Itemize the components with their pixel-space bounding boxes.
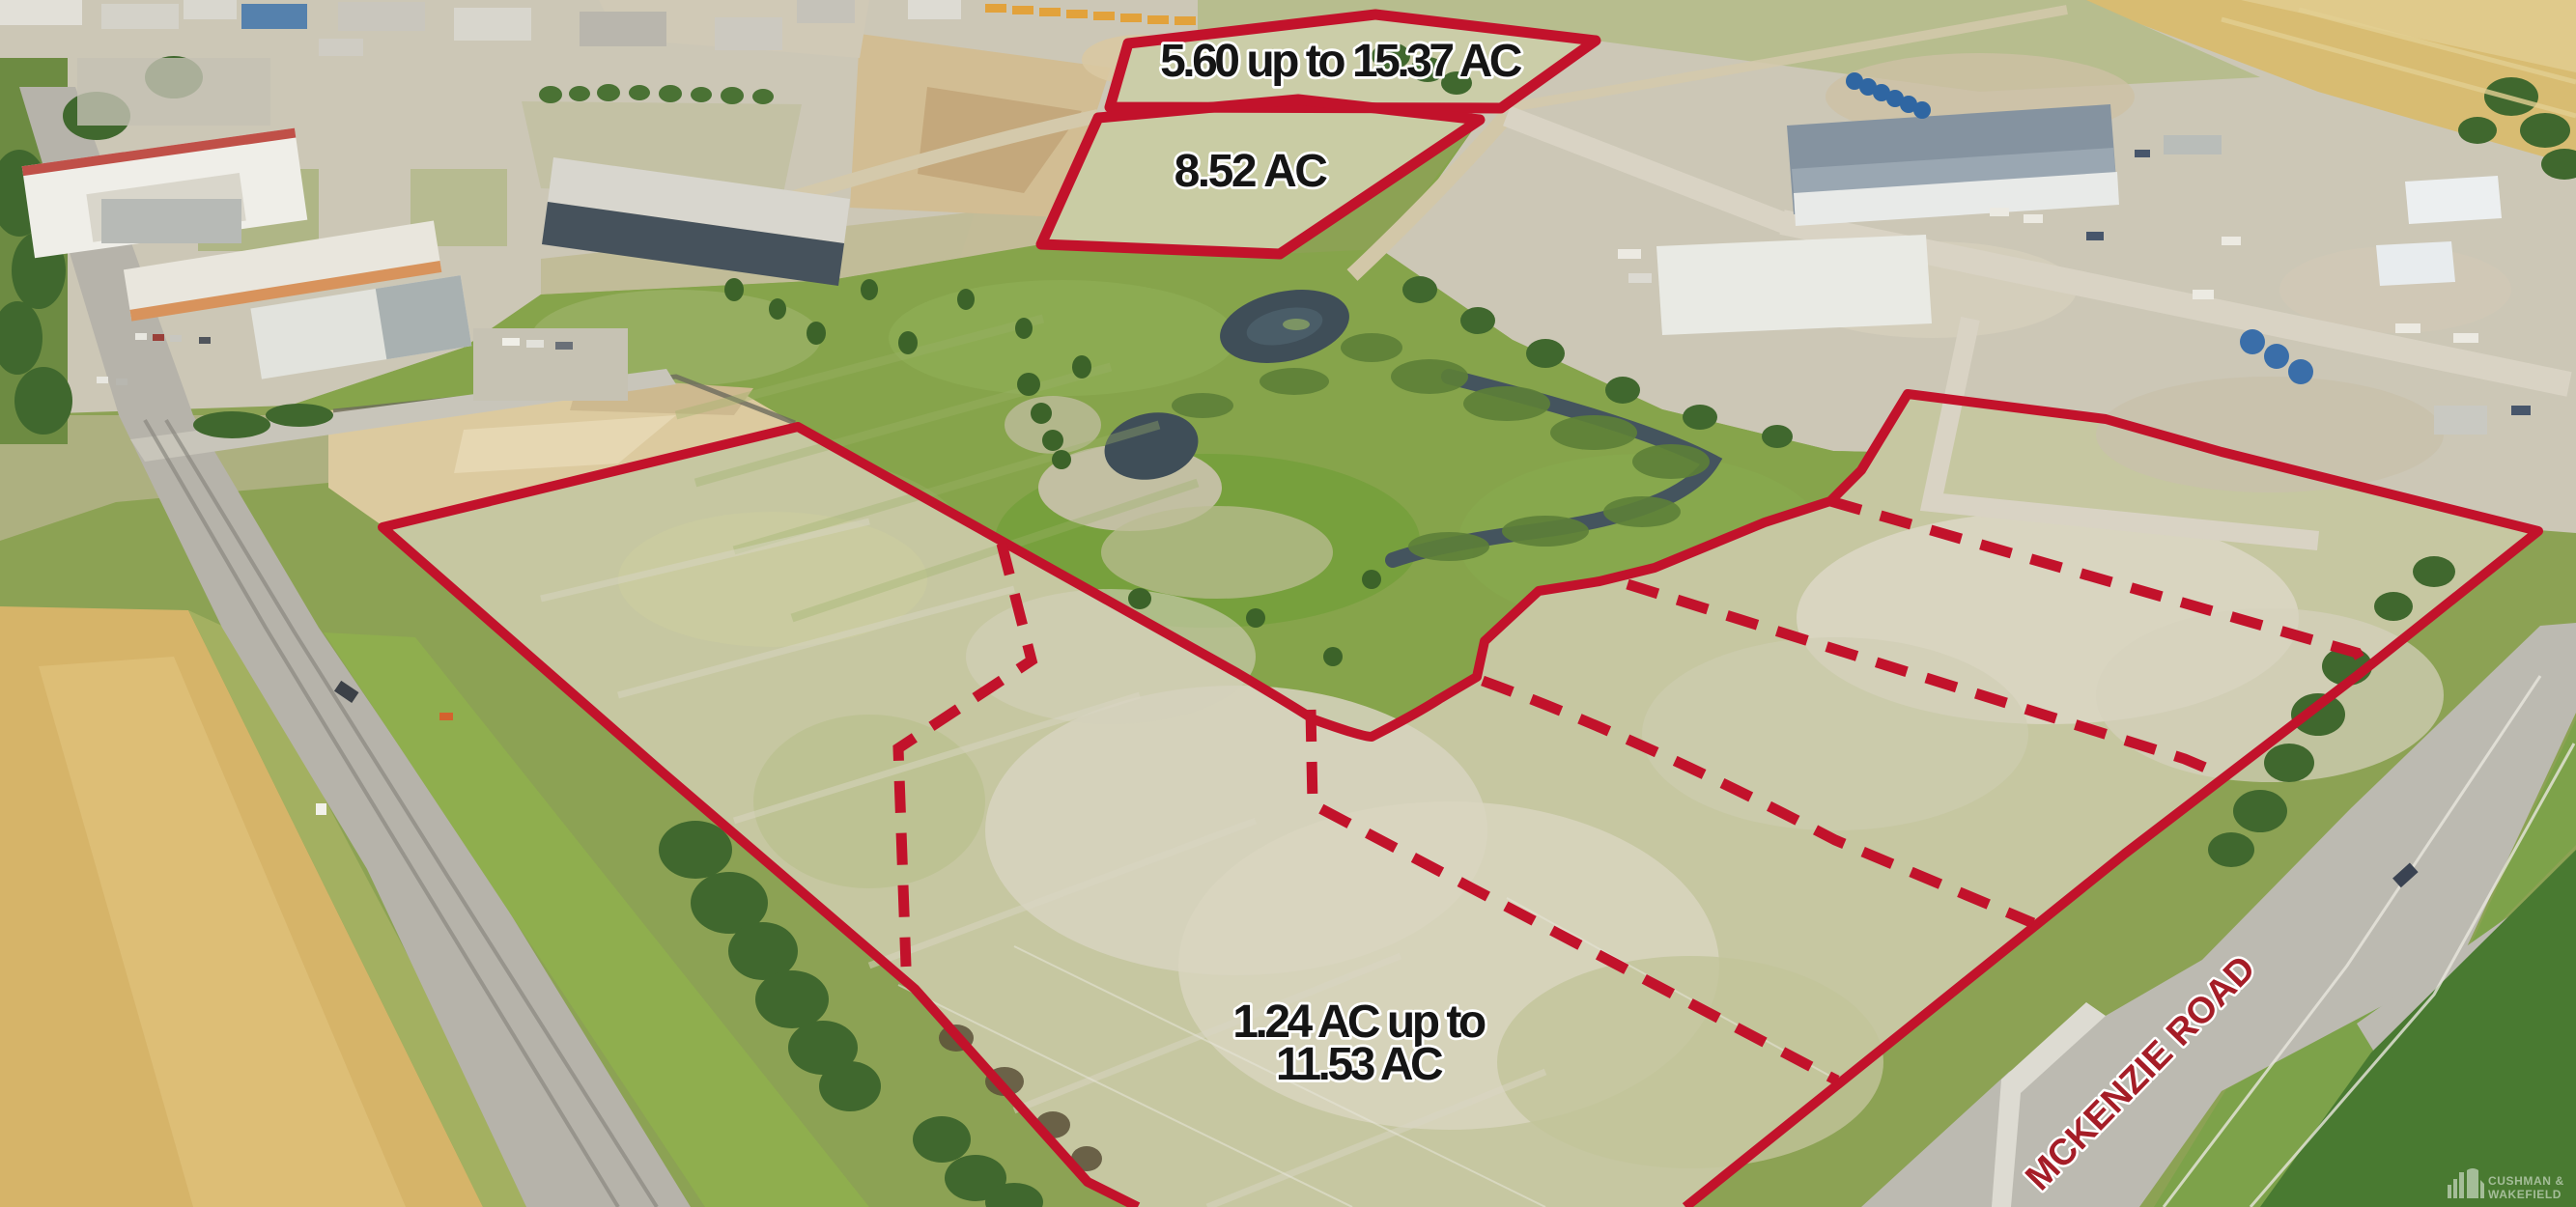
svg-text:8.52 AC: 8.52 AC xyxy=(1175,146,1328,197)
svg-text:11.53 AC: 11.53 AC xyxy=(1276,1039,1443,1090)
svg-text:CUSHMAN &: CUSHMAN & xyxy=(2488,1174,2564,1188)
svg-text:5.60 up to 15.37 AC: 5.60 up to 15.37 AC xyxy=(1160,36,1522,87)
svg-text:WAKEFIELD: WAKEFIELD xyxy=(2488,1188,2562,1201)
